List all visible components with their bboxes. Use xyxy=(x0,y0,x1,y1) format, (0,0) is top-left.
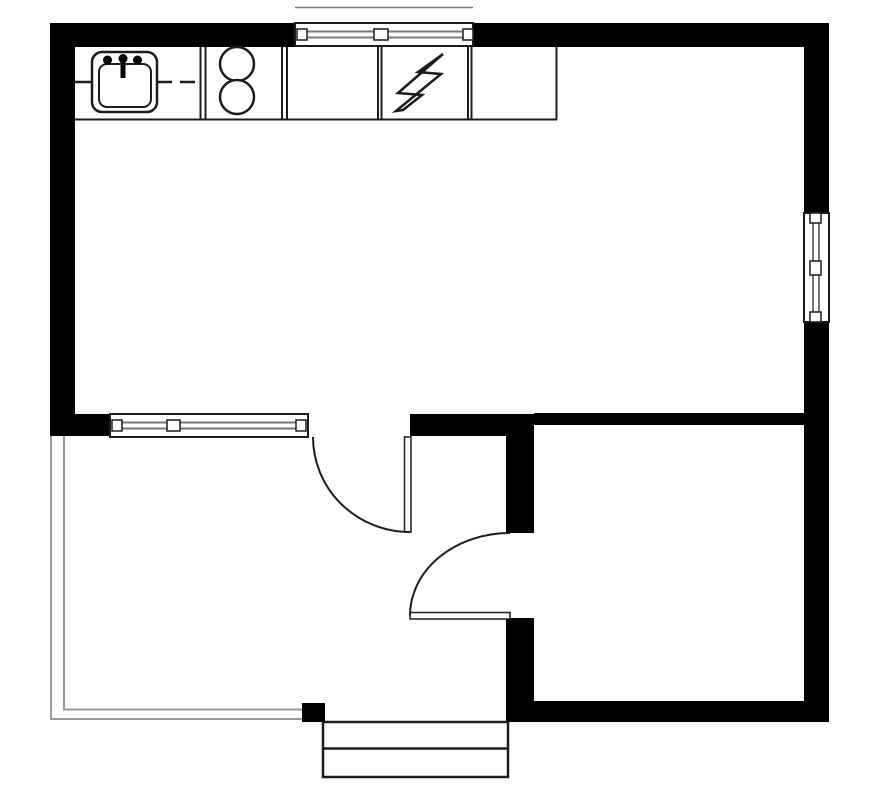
top-window-end-post xyxy=(297,29,307,40)
middle-window-mullion xyxy=(167,420,180,431)
bedroom-door xyxy=(410,533,510,619)
sink-tap-dot xyxy=(119,54,128,63)
sink-tap-dot xyxy=(133,56,142,65)
stove-burners xyxy=(220,47,254,114)
burner-icon xyxy=(220,80,254,114)
sink-tap-dot xyxy=(103,56,112,65)
floor-plan xyxy=(0,0,875,800)
wall-east xyxy=(804,23,829,722)
middle-window-end-post xyxy=(112,420,122,431)
top-window xyxy=(295,8,473,47)
entry-post xyxy=(302,703,325,722)
wall-bedroom-lower xyxy=(506,618,534,722)
top-window-mullion xyxy=(374,29,388,40)
wall-mid-center-segment xyxy=(410,414,506,436)
porch-edge xyxy=(51,436,302,719)
top-window-end-post xyxy=(463,29,473,40)
door-swing-arc xyxy=(313,437,410,532)
middle-window-frame xyxy=(110,414,308,437)
porch-inner-line xyxy=(64,436,302,710)
burner-icon xyxy=(220,47,254,81)
middle-window-end-post xyxy=(296,420,306,431)
entry-steps xyxy=(323,722,508,777)
wall-bedroom-upper xyxy=(506,414,534,533)
door-leaf xyxy=(410,613,510,620)
wall-south xyxy=(506,701,829,722)
right-window-end-post xyxy=(810,312,821,322)
right-window-end-post xyxy=(810,213,821,223)
wall-west xyxy=(50,23,75,436)
wall-mid-right-segment xyxy=(534,413,804,425)
porch-outer-line xyxy=(51,436,302,719)
right-window-mullion xyxy=(810,261,821,275)
door-swing-arc xyxy=(410,533,510,616)
floor-plan-drawing xyxy=(0,0,875,800)
middle-window xyxy=(110,414,308,437)
wall-mid-left-segment xyxy=(50,414,112,436)
right-window xyxy=(804,213,829,322)
main-room-door xyxy=(313,437,411,532)
lightning-bolt-icon xyxy=(396,54,443,111)
door-leaf xyxy=(405,437,412,532)
kitchen-sink xyxy=(92,52,157,112)
